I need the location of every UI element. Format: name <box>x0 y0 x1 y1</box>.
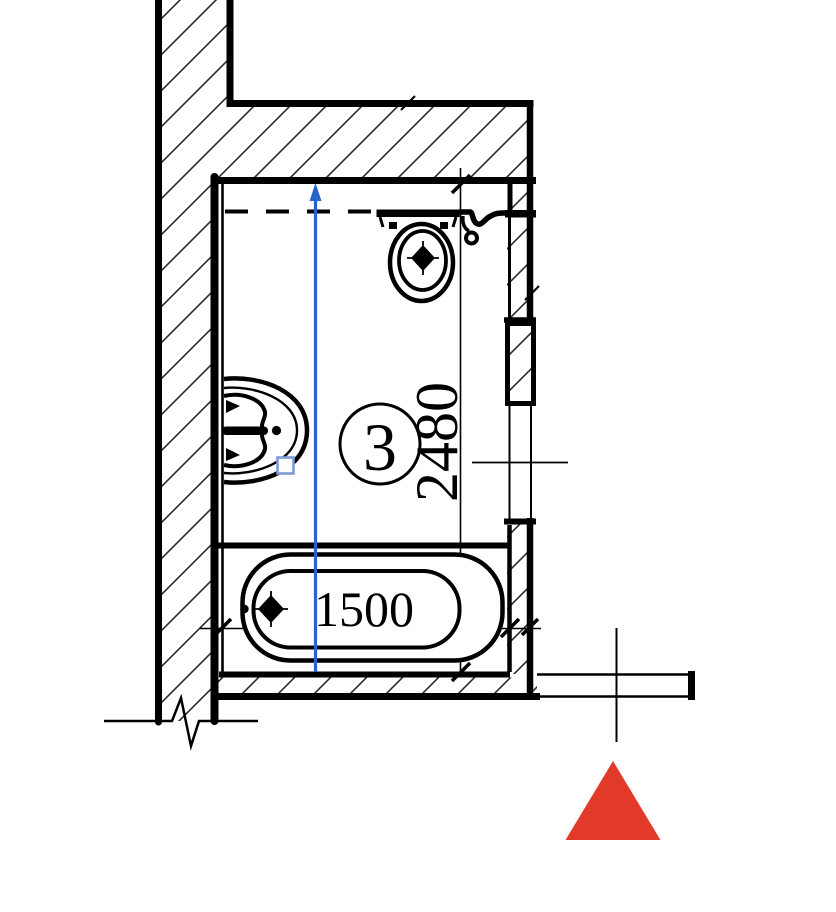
faucet-handle <box>226 400 240 413</box>
selection-grip[interactable] <box>278 458 294 474</box>
red-triangle-marker-icon[interactable] <box>566 761 661 840</box>
measure-arrow-up-icon <box>310 183 322 201</box>
faucet-handle <box>226 448 240 461</box>
supply-point <box>240 605 248 613</box>
sink-faucet <box>222 427 268 436</box>
dimension-vertical-label: 2480 <box>404 382 470 502</box>
floor-plan-canvas: 3 2480 1500 <box>0 0 836 912</box>
drawing-area: 3 2480 1500 <box>0 0 836 912</box>
dimension-horizontal-label: 1500 <box>314 581 414 637</box>
room-number-label: 3 <box>363 409 397 485</box>
toilet-tank <box>377 210 460 218</box>
pipe-trap <box>466 233 477 244</box>
